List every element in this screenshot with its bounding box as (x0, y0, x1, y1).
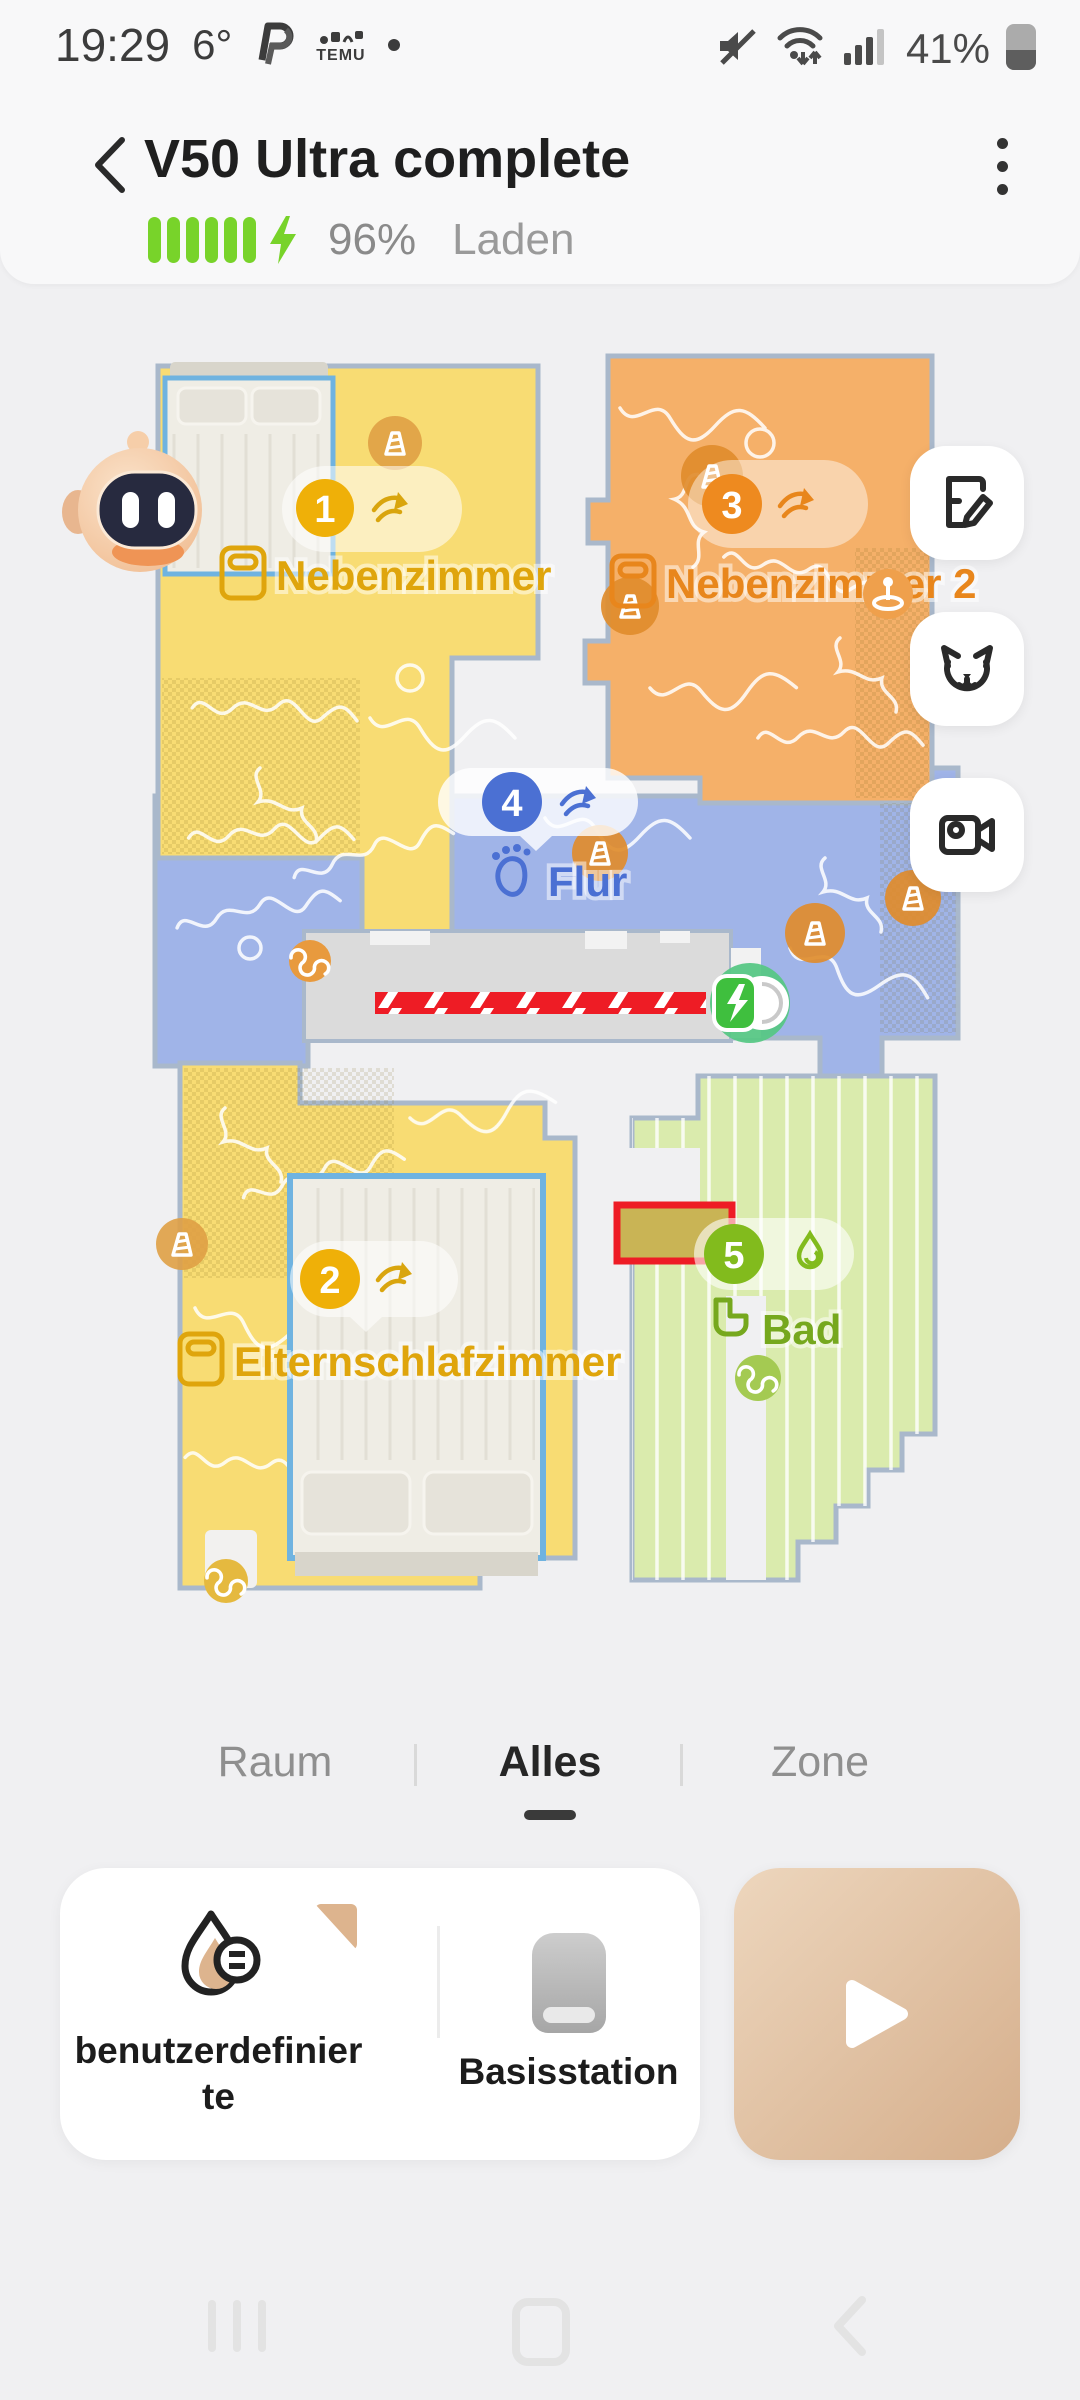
nav-home-button[interactable] (512, 2298, 570, 2366)
notification-dot-icon (388, 39, 400, 51)
room-2-label: Elternschlafzimmer (180, 1334, 621, 1385)
play-button[interactable] (734, 1868, 1020, 2160)
action-card: benutzerdefinierte Basisstation (60, 1868, 700, 2160)
badge-number: 1 (314, 489, 335, 531)
tab-raum[interactable]: Raum (180, 1738, 370, 1787)
back-button[interactable] (78, 130, 148, 200)
blocked-area (304, 931, 761, 1041)
badge-number: 2 (319, 1260, 340, 1302)
custom-clean-button[interactable]: benutzerdefinierte (60, 1868, 377, 2160)
pet-mode-button[interactable] (910, 612, 1024, 726)
edit-map-button[interactable] (910, 446, 1024, 560)
status-battery-percent: 41% (906, 25, 990, 73)
badge-number: 4 (501, 783, 522, 825)
temu-label: TEMU (316, 48, 365, 64)
map-tools (910, 446, 1024, 944)
signal-icon (842, 23, 892, 74)
cat-icon (934, 636, 1000, 702)
video-camera-icon (934, 802, 1000, 868)
status-time: 19:29 (55, 18, 170, 72)
status-bar: 19:29 6° TEMU (0, 18, 1080, 78)
edit-map-icon (935, 471, 999, 535)
robot-battery-percent: 96% (328, 215, 416, 265)
tab-zone[interactable]: Zone (725, 1738, 915, 1787)
charging-dock (710, 963, 790, 1043)
svg-text:Nebenzimmer: Nebenzimmer (276, 552, 551, 599)
badge-number: 3 (721, 485, 742, 527)
custom-clean-label: benutzerdefinierte (69, 2028, 369, 2121)
app-screen: 19:29 6° TEMU (0, 0, 1080, 2400)
virtual-wall[interactable] (375, 992, 706, 1014)
water-drop-settings-icon (171, 1908, 267, 2012)
svg-text:Elternschlafzimmer: Elternschlafzimmer (234, 1338, 621, 1385)
room-5-order-badge[interactable]: 5 (694, 1218, 854, 1290)
base-station-icon (532, 1933, 606, 2033)
badge-number: 5 (723, 1235, 744, 1277)
robot-avatar (62, 430, 214, 583)
svg-text:Bad: Bad (762, 1306, 841, 1353)
tab-separator (680, 1744, 683, 1786)
map-gap (726, 1296, 766, 1580)
svg-text:Flur: Flur (548, 858, 627, 905)
muted-icon (714, 23, 760, 74)
play-icon (842, 1976, 912, 2052)
status-temperature: 6° (192, 21, 232, 69)
nav-recents-button[interactable] (208, 2300, 266, 2352)
more-menu-button[interactable] (972, 128, 1032, 204)
temu-icon: TEMU (316, 26, 365, 64)
robot-battery-gauge: 96% Laden (148, 214, 574, 266)
base-station-button[interactable]: Basisstation (437, 1868, 700, 2160)
room-1-order-badge[interactable]: 1 (282, 466, 462, 552)
camera-button[interactable] (910, 778, 1024, 892)
base-station-label: Basisstation (444, 2049, 694, 2095)
tab-separator (414, 1744, 417, 1786)
charging-bolt-icon (266, 214, 300, 266)
tab-alles[interactable]: Alles (455, 1738, 645, 1787)
nav-bar (0, 2278, 1080, 2378)
page-title: V50 Ultra complete (144, 128, 630, 190)
back-icon (98, 140, 122, 190)
lamp-obstacle-icon (863, 569, 913, 619)
battery-icon (1004, 20, 1038, 77)
wifi-icon (774, 22, 828, 75)
header-card: 19:29 6° TEMU (0, 0, 1080, 284)
robot-battery-status: Laden (452, 215, 574, 265)
clean-mode-tabs: Raum Alles Zone (0, 1738, 1080, 1848)
room-3-order-badge[interactable]: 3 (688, 460, 868, 548)
nav-back-button[interactable] (828, 2296, 872, 2361)
paypal-icon (254, 20, 294, 71)
battery-bars-icon (148, 217, 256, 263)
tab-underline (524, 1810, 576, 1820)
